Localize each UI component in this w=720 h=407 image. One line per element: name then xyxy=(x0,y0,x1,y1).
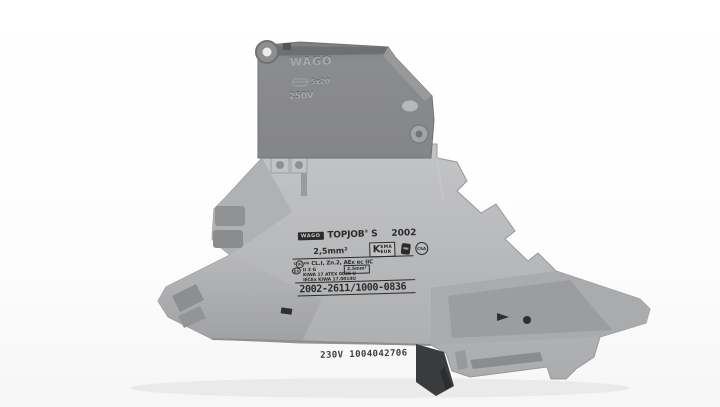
upper-left-port xyxy=(215,206,245,226)
ground-shadow xyxy=(130,378,630,398)
vent-slot xyxy=(301,170,307,196)
product-photo-terminal-block: WAGO 5x20 250V WAGO TOPJOB® S 2002 2,5mm… xyxy=(0,0,720,407)
carrier-latch xyxy=(283,43,291,50)
carrier-roof-hole xyxy=(402,101,418,112)
hinge-pin-hole xyxy=(416,131,423,138)
carrier-ring-hole xyxy=(263,48,272,57)
upper-left-port-2 xyxy=(213,230,243,248)
molded-dot xyxy=(523,316,531,324)
fuse-carrier-shape xyxy=(258,42,434,158)
test-port-hole-2 xyxy=(295,161,303,169)
terminal-block-illustration xyxy=(0,0,720,407)
test-port-hole xyxy=(276,161,284,169)
